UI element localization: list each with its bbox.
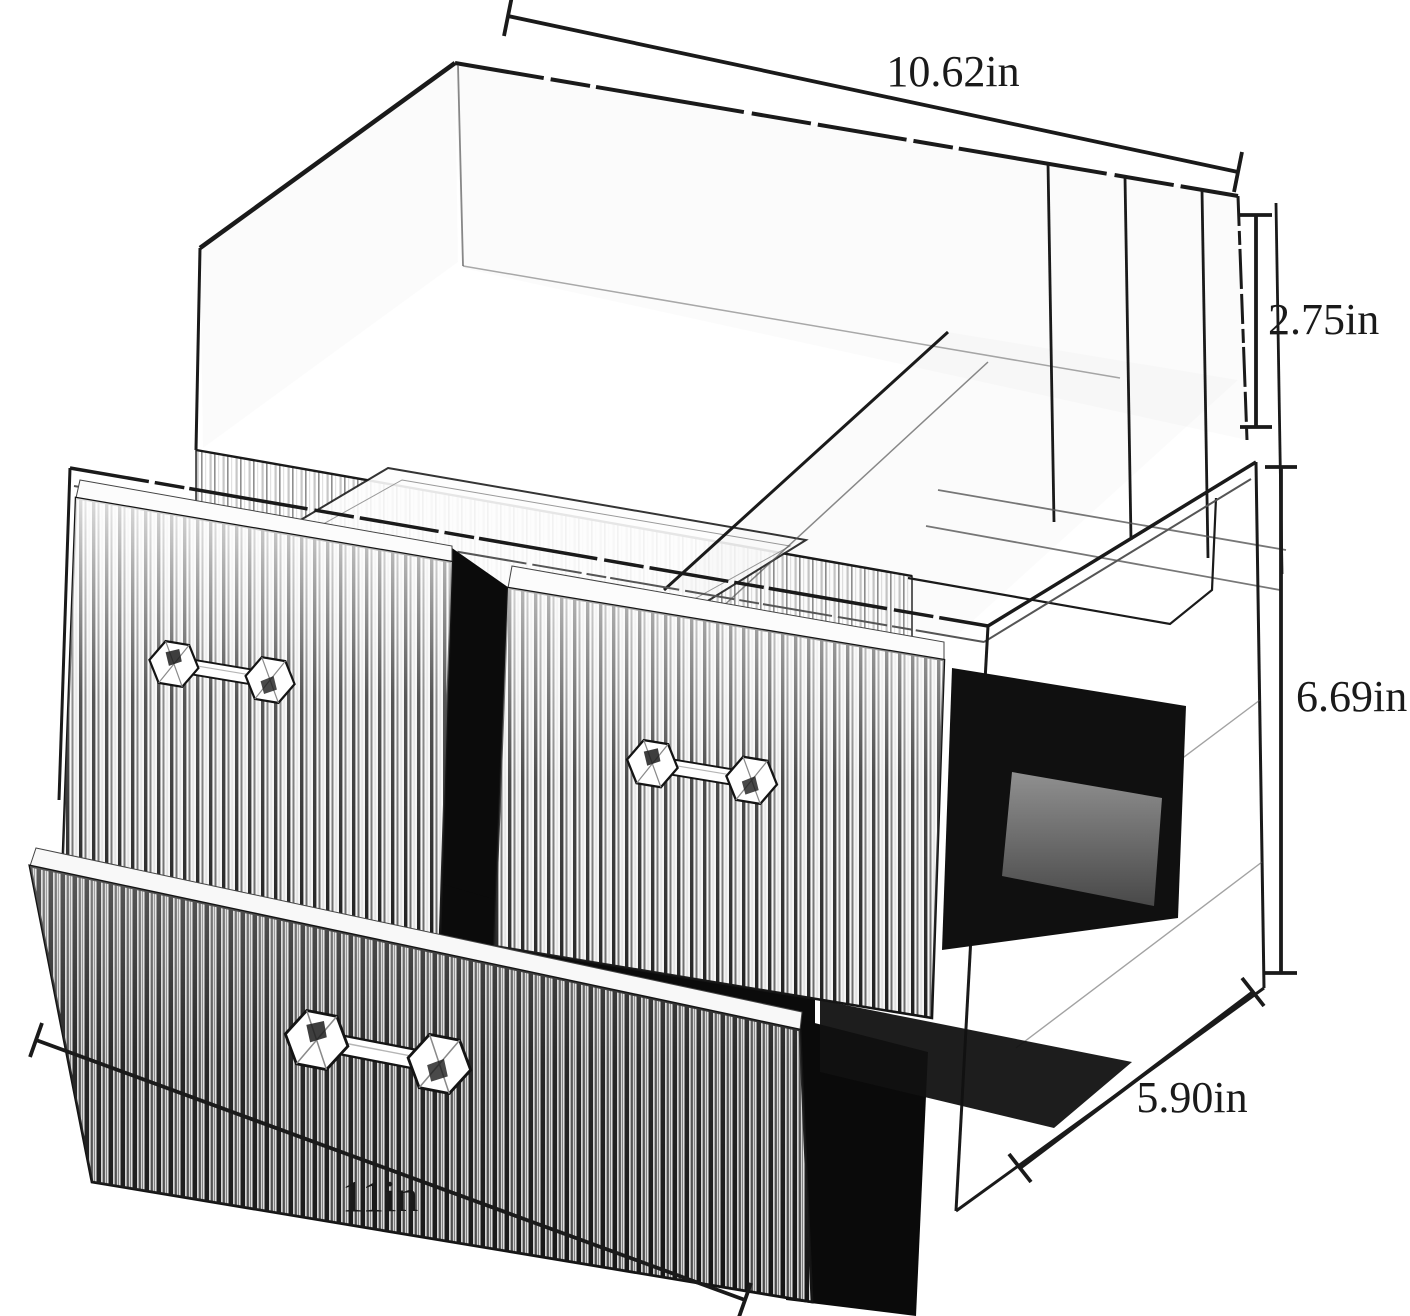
left-wall bbox=[200, 63, 458, 448]
drawer-cabinet bbox=[30, 462, 1264, 1316]
label-depth: 5.90in bbox=[1136, 1073, 1247, 1122]
label-bottom-width: 11in bbox=[342, 1172, 419, 1221]
slanted-panel bbox=[664, 332, 1238, 638]
label-body-height: 6.69in bbox=[1296, 672, 1407, 721]
dimension-body-height: 6.69in bbox=[1265, 467, 1407, 973]
product-dimension-diagram: 10.62in 2.75in 6.69in 5.90in 11in bbox=[0, 0, 1410, 1316]
label-top-width: 10.62in bbox=[886, 47, 1019, 96]
dimension-top-height: 2.75in bbox=[1240, 215, 1379, 427]
label-top-height: 2.75in bbox=[1268, 295, 1379, 344]
organizer-illustration: 10.62in 2.75in 6.69in 5.90in 11in bbox=[0, 0, 1410, 1316]
drawer-middle-right bbox=[494, 566, 944, 1018]
interior-right bbox=[942, 668, 1186, 950]
